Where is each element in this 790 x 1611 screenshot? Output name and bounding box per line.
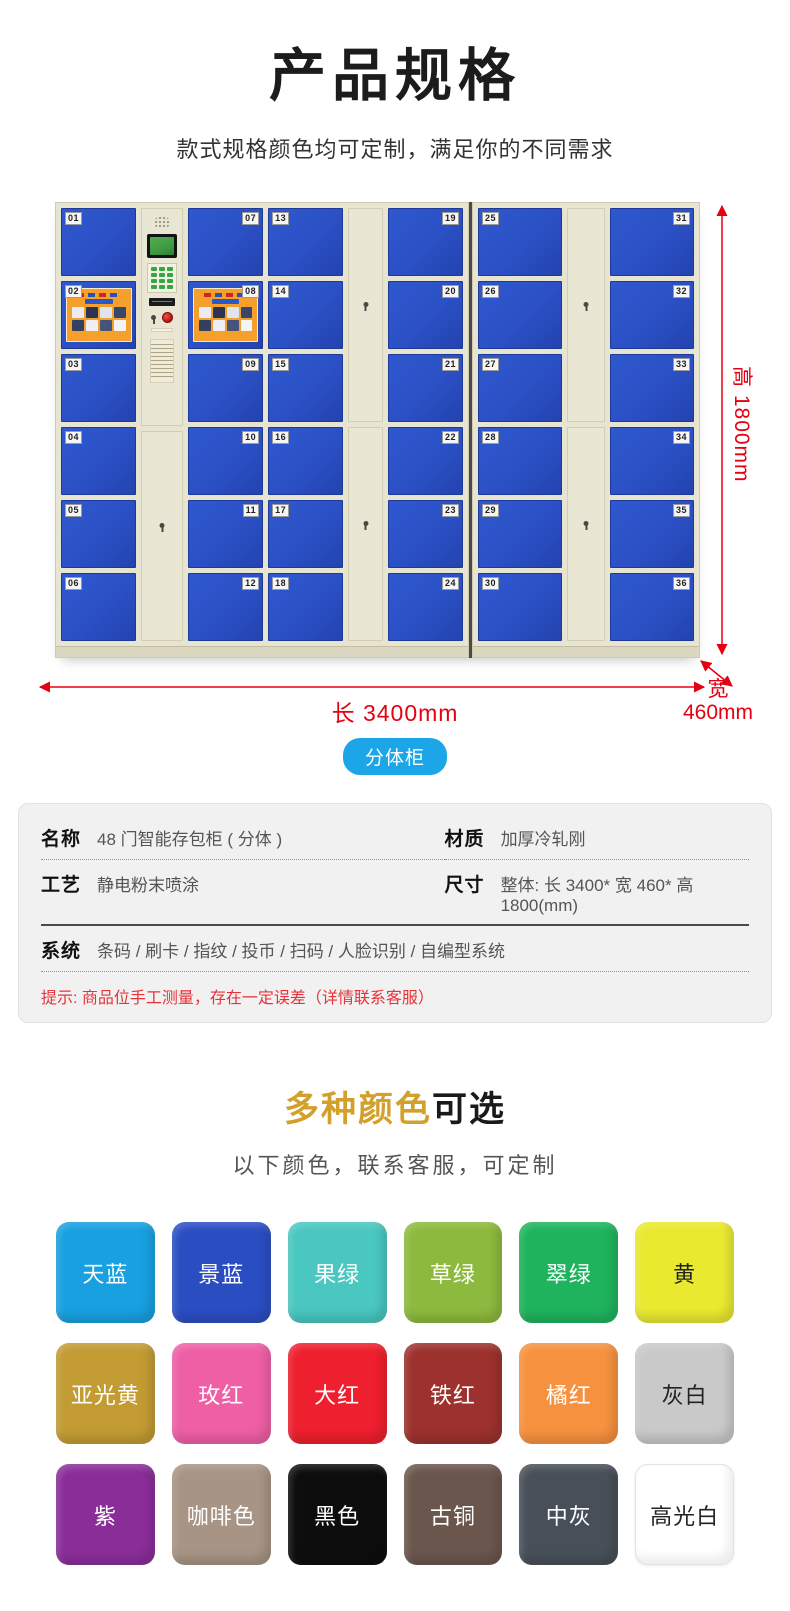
color-swatch-label: 高光白 — [650, 1499, 719, 1531]
color-swatch-5: 黄 — [635, 1222, 734, 1323]
spec-value: 整体: 长 3400* 宽 460* 高 1800(mm) — [501, 871, 749, 916]
ticket-slot — [149, 298, 175, 306]
locker-door-23: 23 — [388, 500, 463, 568]
keypad — [147, 263, 177, 293]
spec-label: 名称 — [41, 824, 81, 851]
color-swatch-10: 橘红 — [519, 1343, 618, 1444]
speaker-grille-icon — [154, 216, 170, 229]
display-screen — [147, 234, 177, 258]
locker-tall-door — [348, 427, 382, 641]
color-swatch-6: 亚光黄 — [56, 1343, 155, 1444]
locker-door-04: 04 — [61, 427, 136, 495]
control-column — [141, 208, 183, 641]
page-title: 产品规格 — [0, 30, 790, 112]
width-dimension-char: 宽 — [662, 678, 774, 701]
door-column: 252627282930 — [478, 208, 562, 641]
color-swatch-7: 玫红 — [172, 1343, 271, 1444]
locker-door-28: 28 — [478, 427, 562, 495]
color-swatch-2: 果绿 — [288, 1222, 387, 1323]
color-swatch-label: 灰白 — [662, 1378, 708, 1410]
locker-door-03: 03 — [61, 354, 136, 422]
door-number: 11 — [243, 504, 260, 517]
color-swatch-label: 咖啡色 — [187, 1499, 256, 1531]
locker-door-05: 05 — [61, 500, 136, 568]
locker-door-35: 35 — [610, 500, 694, 568]
color-swatch-15: 古铜 — [404, 1464, 503, 1565]
colors-section-title: 多种颜色可选 — [0, 1081, 790, 1132]
color-swatch-label: 黑色 — [314, 1499, 360, 1531]
door-number: 15 — [272, 358, 289, 371]
locker-door-09: 09 — [188, 354, 263, 422]
locker-door-10: 10 — [188, 427, 263, 495]
locker-door-20: 20 — [388, 281, 463, 349]
door-number: 28 — [482, 431, 499, 444]
door-column: 192021222324 — [388, 208, 463, 641]
color-swatch-1: 景蓝 — [172, 1222, 271, 1323]
door-number: 36 — [673, 577, 690, 590]
locker-tall-door — [567, 208, 605, 422]
locker-cabinets-image: 0102030405060708091011121314151617181920… — [55, 202, 700, 658]
keyhole-icon — [160, 523, 165, 528]
color-swatch-13: 咖啡色 — [172, 1464, 271, 1565]
locker-door-25: 25 — [478, 208, 562, 276]
color-swatch-label: 景蓝 — [198, 1257, 244, 1289]
locker-door-11: 11 — [188, 500, 263, 568]
door-number: 16 — [272, 431, 289, 444]
color-swatch-label: 古铜 — [430, 1499, 476, 1531]
locker-tall-door — [348, 208, 382, 422]
color-swatch-label: 铁红 — [430, 1378, 476, 1410]
door-number: 14 — [272, 285, 289, 298]
door-number: 05 — [65, 504, 82, 517]
cabinet-type-badge: 分体柜 — [343, 738, 447, 775]
color-swatch-label: 果绿 — [314, 1257, 360, 1289]
door-number: 24 — [442, 577, 459, 590]
colors-section-subtitle: 以下颜色，联系客服，可定制 — [0, 1148, 790, 1180]
color-swatch-label: 橘红 — [546, 1378, 592, 1410]
door-number: 02 — [65, 285, 82, 298]
door-number: 27 — [482, 358, 499, 371]
color-swatch-8: 大红 — [288, 1343, 387, 1444]
door-number: 25 — [482, 212, 499, 225]
locker-door-15: 15 — [268, 354, 343, 422]
keyhole-icon — [151, 315, 156, 320]
control-panel — [141, 208, 183, 426]
door-number: 32 — [673, 285, 690, 298]
door-number: 30 — [482, 577, 499, 590]
door-number: 33 — [673, 358, 690, 371]
color-swatch-9: 铁红 — [404, 1343, 503, 1444]
door-number: 10 — [242, 431, 259, 444]
color-swatch-0: 天蓝 — [56, 1222, 155, 1323]
spec-value: 48 门智能存包柜 ( 分体 ) — [97, 825, 282, 850]
width-dimension-value: 460mm — [662, 701, 774, 724]
locker-door-36: 36 — [610, 573, 694, 641]
locker-door-21: 21 — [388, 354, 463, 422]
color-swatch-label: 紫 — [94, 1499, 117, 1531]
color-swatch-label: 天蓝 — [82, 1257, 128, 1289]
door-number: 20 — [442, 285, 459, 298]
door-number: 06 — [65, 577, 82, 590]
locker-door-30: 30 — [478, 573, 562, 641]
locker-door-33: 33 — [610, 354, 694, 422]
locker-door-26: 26 — [478, 281, 562, 349]
door-number: 07 — [242, 212, 259, 225]
spec-row-size: 尺寸 整体: 长 3400* 宽 460* 高 1800(mm) — [445, 860, 749, 926]
door-number: 22 — [442, 431, 459, 444]
locker-door-07: 07 — [188, 208, 263, 276]
spec-value: 加厚冷轧刚 — [501, 825, 586, 850]
cabinet-base — [473, 646, 699, 657]
height-dimension-label: 高 1800mm — [728, 366, 758, 483]
color-swatch-label: 草绿 — [430, 1257, 476, 1289]
locker-door-13: 13 — [268, 208, 343, 276]
spec-label: 尺寸 — [445, 870, 485, 897]
locker-door-34: 34 — [610, 427, 694, 495]
spec-note: 提示: 商品位手工测量，存在一定误差（详情联系客服） — [41, 972, 749, 1012]
locker-door-27: 27 — [478, 354, 562, 422]
color-swatch-4: 翠绿 — [519, 1222, 618, 1323]
spec-label: 系统 — [41, 936, 81, 963]
door-number: 31 — [673, 212, 690, 225]
locker-door-19: 19 — [388, 208, 463, 276]
door-number: 04 — [65, 431, 82, 444]
locker-door-02: 02 — [61, 281, 136, 349]
locker-door-18: 18 — [268, 573, 343, 641]
door-number: 34 — [673, 431, 690, 444]
locker-door-06: 06 — [61, 573, 136, 641]
spec-value: 条码 / 刷卡 / 指纹 / 投币 / 扫码 / 人脸识别 / 自编型系统 — [97, 937, 505, 962]
door-number: 01 — [65, 212, 82, 225]
door-number: 19 — [442, 212, 459, 225]
color-swatch-17: 高光白 — [635, 1464, 734, 1565]
locker-door-01: 01 — [61, 208, 136, 276]
door-number: 21 — [442, 358, 459, 371]
color-swatch-12: 紫 — [56, 1464, 155, 1565]
keyhole-icon — [584, 302, 589, 307]
spec-label: 材质 — [445, 824, 485, 851]
door-number: 03 — [65, 358, 82, 371]
spec-table: 名称 48 门智能存包柜 ( 分体 ) 材质 加厚冷轧刚 工艺 静电粉末喷涂 尺… — [18, 803, 772, 1023]
color-swatch-label: 中灰 — [546, 1499, 592, 1531]
spec-row-name: 名称 48 门智能存包柜 ( 分体 ) — [41, 814, 445, 860]
tall-door-column — [567, 208, 605, 641]
color-swatch-label: 黄 — [673, 1257, 696, 1289]
locker-door-22: 22 — [388, 427, 463, 495]
door-column: 313233343536 — [610, 208, 694, 641]
color-swatch-label: 亚光黄 — [71, 1378, 140, 1410]
keyhole-icon — [584, 521, 589, 526]
locker-door-16: 16 — [268, 427, 343, 495]
product-figure: 0102030405060708091011121314151617181920… — [0, 200, 790, 730]
color-swatch-grid: 天蓝景蓝果绿草绿翠绿黄亚光黄玫红大红铁红橘红灰白紫咖啡色黑色古铜中灰高光白 — [56, 1222, 734, 1565]
spec-row-system: 系统 条码 / 刷卡 / 指纹 / 投币 / 扫码 / 人脸识别 / 自编型系统 — [41, 926, 749, 972]
locker-door-31: 31 — [610, 208, 694, 276]
door-number: 13 — [272, 212, 289, 225]
tall-door-column — [348, 208, 382, 641]
locker-door-08: 08 — [188, 281, 263, 349]
color-swatch-14: 黑色 — [288, 1464, 387, 1565]
keyhole-icon — [363, 521, 368, 526]
locker-door-17: 17 — [268, 500, 343, 568]
keyhole-icon — [363, 302, 368, 307]
spec-value: 静电粉末喷涂 — [97, 871, 199, 896]
colors-title-highlight: 多种颜色 — [284, 1090, 432, 1129]
locker-door-29: 29 — [478, 500, 562, 568]
color-swatch-label: 翠绿 — [546, 1257, 592, 1289]
door-number: 17 — [272, 504, 289, 517]
spec-row-craft: 工艺 静电粉末喷涂 — [41, 860, 445, 926]
product-spec-page: 产品规格 款式规格颜色均可定制，满足你的不同需求 010203040506070… — [0, 30, 790, 1611]
locker-door-12: 12 — [188, 573, 263, 641]
locker-door-32: 32 — [610, 281, 694, 349]
spec-label: 工艺 — [41, 870, 81, 897]
door-column: 070809101112 — [188, 208, 263, 641]
left-cabinet: 0102030405060708091011121314151617181920… — [55, 202, 469, 658]
locker-tall-door — [141, 431, 183, 642]
door-column: 010203040506 — [61, 208, 136, 641]
color-swatch-16: 中灰 — [519, 1464, 618, 1565]
spec-row-material: 材质 加厚冷轧刚 — [445, 814, 749, 860]
door-number: 26 — [482, 285, 499, 298]
door-number: 29 — [482, 504, 499, 517]
page-subtitle: 款式规格颜色均可定制，满足你的不同需求 — [0, 132, 790, 164]
door-number: 23 — [442, 504, 459, 517]
door-number: 08 — [242, 285, 259, 298]
color-swatch-label: 玫红 — [198, 1378, 244, 1410]
door-number: 09 — [242, 358, 259, 371]
instruction-text — [150, 339, 174, 383]
color-swatch-label: 大红 — [314, 1378, 360, 1410]
door-column: 131415161718 — [268, 208, 343, 641]
cabinet-base — [56, 646, 468, 657]
door-number: 35 — [673, 504, 690, 517]
red-button — [162, 312, 173, 323]
right-cabinet: 252627282930313233343536 — [472, 202, 700, 658]
colors-title-rest: 可选 — [432, 1090, 506, 1129]
color-swatch-3: 草绿 — [404, 1222, 503, 1323]
color-swatch-11: 灰白 — [635, 1343, 734, 1444]
door-number: 18 — [272, 577, 289, 590]
door-number: 12 — [242, 577, 259, 590]
panel-label — [151, 328, 173, 332]
locker-tall-door — [567, 427, 605, 641]
locker-door-24: 24 — [388, 573, 463, 641]
locker-door-14: 14 — [268, 281, 343, 349]
width-dimension-label: 宽 460mm — [662, 678, 774, 724]
